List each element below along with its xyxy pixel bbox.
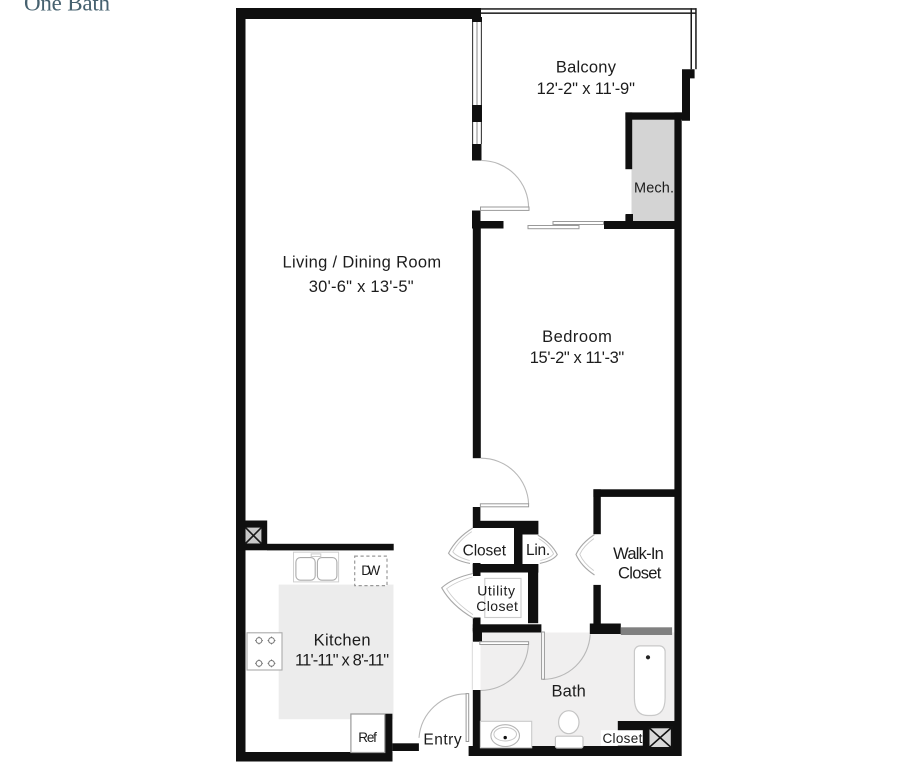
svg-text:Mech.: Mech. <box>634 181 674 197</box>
svg-text:Bath: Bath <box>552 682 586 700</box>
svg-text:One Bath: One Bath <box>24 0 111 16</box>
svg-text:11'-11" x 8'-11": 11'-11" x 8'-11" <box>295 652 389 670</box>
svg-text:Closet: Closet <box>602 731 642 746</box>
svg-text:Kitchen: Kitchen <box>314 632 371 650</box>
svg-text:Closet: Closet <box>476 598 518 614</box>
svg-text:Utility: Utility <box>477 582 515 598</box>
svg-text:Entry: Entry <box>423 731 461 748</box>
svg-text:Lin.: Lin. <box>526 542 550 559</box>
svg-text:15'-2" x 11'-3": 15'-2" x 11'-3" <box>530 349 625 367</box>
svg-text:Bedroom: Bedroom <box>542 328 612 346</box>
svg-text:12'-2" x 11'-9": 12'-2" x 11'-9" <box>537 80 635 98</box>
svg-text:Walk-In: Walk-In <box>613 545 664 563</box>
svg-text:Closet: Closet <box>463 542 507 559</box>
svg-text:DW: DW <box>361 563 380 578</box>
svg-text:30'-6" x 13'-5": 30'-6" x 13'-5" <box>309 278 414 296</box>
svg-text:Closet: Closet <box>618 565 662 583</box>
svg-text:Balcony: Balcony <box>556 58 617 76</box>
svg-text:Living / Dining Room: Living / Dining Room <box>282 253 441 271</box>
svg-text:Ref: Ref <box>358 730 377 745</box>
